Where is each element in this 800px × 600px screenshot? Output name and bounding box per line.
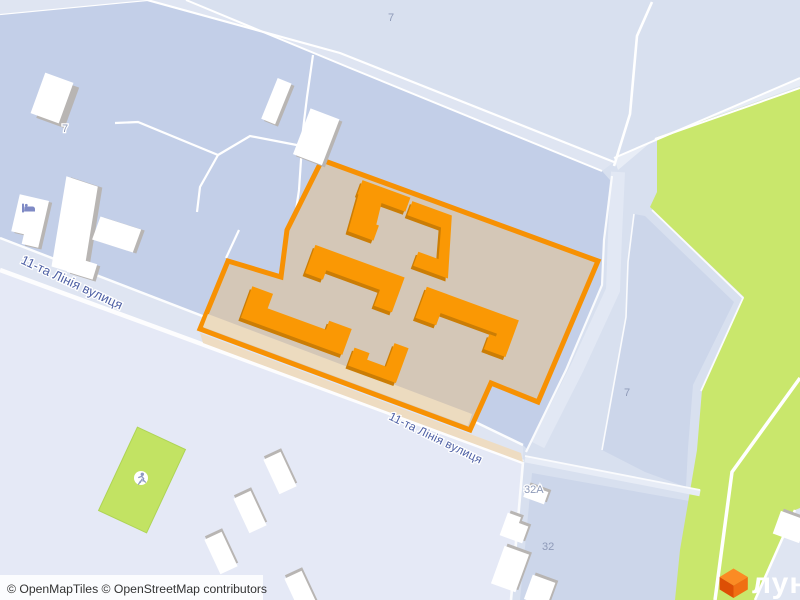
svg-text:© OpenMapTiles © OpenStreetMap: © OpenMapTiles © OpenStreetMap contribut… — [7, 582, 267, 596]
svg-text:7: 7 — [624, 387, 630, 399]
svg-text:лун: лун — [752, 567, 800, 600]
svg-text:7: 7 — [62, 123, 68, 135]
svg-text:7: 7 — [388, 12, 394, 24]
svg-text:32А: 32А — [524, 484, 544, 496]
svg-text:32: 32 — [542, 541, 554, 553]
